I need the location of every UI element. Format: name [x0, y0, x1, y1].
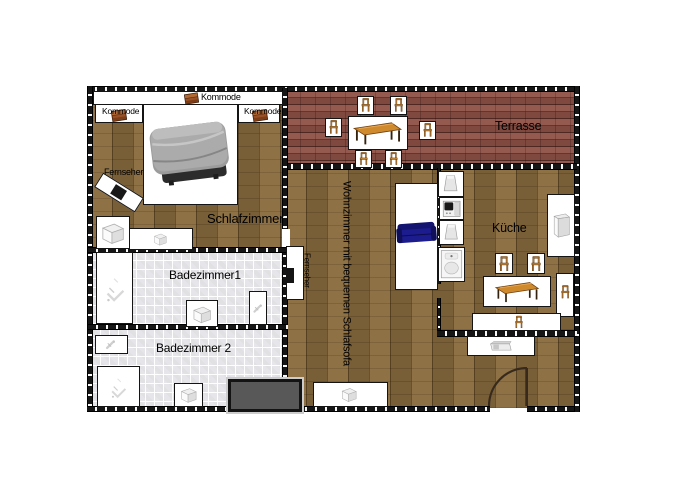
floor-plan: KommodeKommodeKommodeFernseherSchlafzimm…: [0, 0, 700, 500]
floor-plan-canvas: KommodeKommodeKommodeFernseherSchlafzimm…: [0, 0, 700, 500]
kitchen-chair-2: [527, 253, 545, 274]
door-swing-icon: [488, 367, 528, 407]
label-kueche: Küche: [492, 222, 526, 235]
bath2-sink: [95, 335, 128, 354]
terrace-chair-2: [390, 96, 407, 115]
terrace-chair-4: [419, 121, 436, 140]
label-terrasse: Terrasse: [495, 120, 541, 133]
fixture-icon: [99, 338, 123, 351]
terrace-table: [348, 116, 408, 150]
cube-icon: [189, 303, 215, 325]
table-icon: [352, 120, 403, 146]
cube-icon: [99, 219, 127, 246]
appliance-mid: [439, 220, 464, 245]
cube-icon: [340, 385, 358, 403]
terrace-chair-6: [385, 150, 402, 168]
bath2-shower: [97, 366, 140, 407]
wall-kitchen-left-b: [437, 298, 441, 334]
desk-icon: [489, 339, 513, 353]
tv-screen: [110, 184, 127, 200]
label-badezimmer2: Badezimmer 2: [156, 342, 231, 355]
fridge-icon: [551, 207, 572, 245]
fixture-icon: [252, 296, 264, 321]
bath2-toilet: [174, 383, 203, 407]
chair-icon: [498, 256, 510, 272]
chair-icon: [393, 98, 404, 112]
wardrobe-2-icon: [151, 230, 170, 248]
sofa-icon: [396, 218, 437, 250]
chair-icon: [560, 284, 571, 300]
cube-icon: [177, 385, 201, 404]
appliance-fridge-top: [438, 171, 464, 197]
chair-icon: [360, 98, 371, 112]
double-bed: [143, 104, 238, 205]
tv-screen: [286, 268, 294, 284]
shower-icon: [102, 371, 135, 402]
label-badezimmer1: Badezimmer1: [169, 269, 241, 282]
kitchen-chair-3: [558, 282, 572, 301]
wall-bottom-right: [527, 406, 580, 412]
wardrobe-1: [96, 216, 130, 249]
door-gap-bedroom-living: [282, 229, 290, 247]
chair-icon: [388, 152, 399, 165]
sideboard-icon: [339, 384, 360, 405]
shower-icon: [101, 260, 129, 316]
entry-desk: [467, 336, 535, 356]
wall-terrace-bottom: [283, 163, 577, 170]
kitchen-sink: [438, 247, 465, 282]
terrace-chair-3: [325, 118, 342, 137]
chair-icon: [422, 123, 433, 137]
fridge-tall: [547, 194, 575, 257]
kitchen-table: [483, 276, 551, 307]
schlafsofa: [396, 218, 437, 250]
entrance-door: [488, 367, 528, 407]
table-icon: [488, 280, 546, 304]
appliance-icon: [442, 223, 460, 241]
kitchen-chair-1: [495, 253, 513, 274]
label-kommode-right: Kommode: [244, 107, 281, 116]
bath1-bidet: [249, 291, 267, 325]
label-fernseher-bedroom: Fernseher: [104, 168, 143, 177]
label-wohnzimmer: Wohnzimmer mit bequemen Schlafsofa: [340, 181, 352, 366]
label-kommode-top: Kommode: [201, 93, 241, 102]
sink-icon: [440, 249, 463, 279]
kitchen-chair-4: [512, 314, 525, 331]
label-kommode-left: Kommode: [102, 107, 139, 116]
chair-icon: [328, 120, 339, 134]
terrace-chair-1: [357, 96, 374, 115]
label-schlafzimmer: Schlafzimmer: [207, 212, 283, 226]
wall-bedroom-right: [282, 88, 288, 229]
oven-icon: [442, 200, 461, 218]
chair-icon: [514, 315, 524, 329]
bed-icon: [144, 105, 237, 204]
chair-icon: [358, 152, 369, 165]
entry-platform: [228, 379, 302, 412]
appliance-icon: [441, 174, 460, 193]
terrace-chair-5: [355, 150, 372, 168]
bath1-toilet: [186, 300, 218, 327]
bath1-shower: [96, 252, 133, 324]
appliance-oven: [439, 197, 464, 220]
cube-icon: [152, 231, 169, 247]
label-fernseher-living: Fernseher: [302, 253, 310, 288]
chair-icon: [530, 256, 542, 272]
